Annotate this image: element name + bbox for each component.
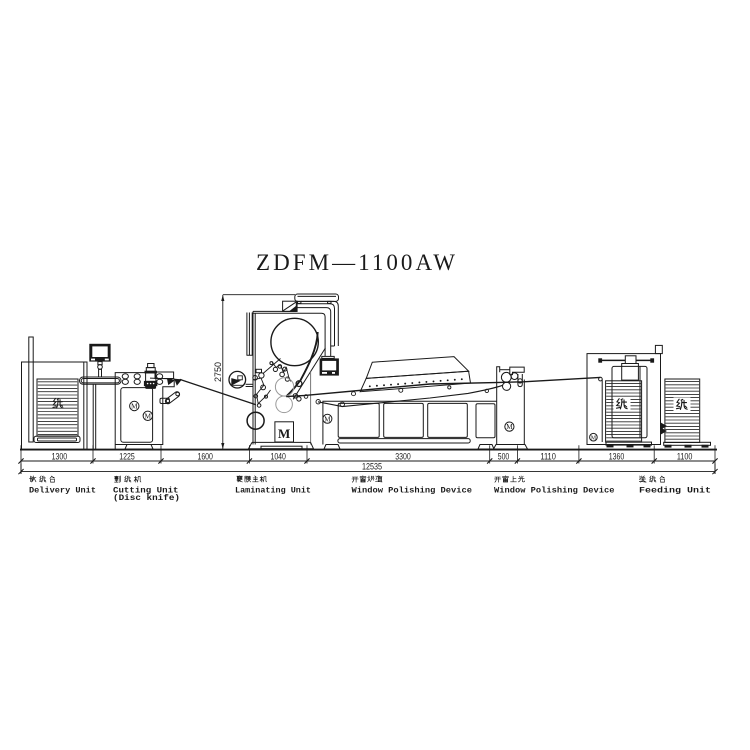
svg-text:M: M <box>131 402 138 411</box>
svg-text:1600: 1600 <box>197 451 213 461</box>
svg-text:1300: 1300 <box>52 451 68 461</box>
svg-text:1100: 1100 <box>677 451 693 461</box>
svg-text:Window Polishing Device: Window Polishing Device <box>494 487 615 496</box>
svg-text:12535: 12535 <box>362 461 382 471</box>
svg-text:Feeding Unit: Feeding Unit <box>639 487 711 496</box>
svg-text:M: M <box>591 435 597 441</box>
svg-text:Laminating Unit: Laminating Unit <box>235 487 311 496</box>
svg-text:M: M <box>278 426 290 441</box>
svg-text:Delivery Unit: Delivery Unit <box>29 487 96 496</box>
svg-text:1110: 1110 <box>540 451 556 461</box>
svg-text:Window Polishing Device: Window Polishing Device <box>352 487 473 496</box>
svg-text:1360: 1360 <box>609 451 625 461</box>
svg-text:1225: 1225 <box>119 451 135 461</box>
svg-text:3300: 3300 <box>395 451 411 461</box>
svg-text:(Disc knife): (Disc knife) <box>113 494 180 503</box>
svg-text:M: M <box>145 411 152 420</box>
svg-text:500: 500 <box>498 451 510 461</box>
svg-text:2750: 2750 <box>213 362 223 382</box>
svg-text:1040: 1040 <box>270 451 286 461</box>
svg-text:M: M <box>324 415 331 423</box>
svg-text:M: M <box>506 423 513 431</box>
